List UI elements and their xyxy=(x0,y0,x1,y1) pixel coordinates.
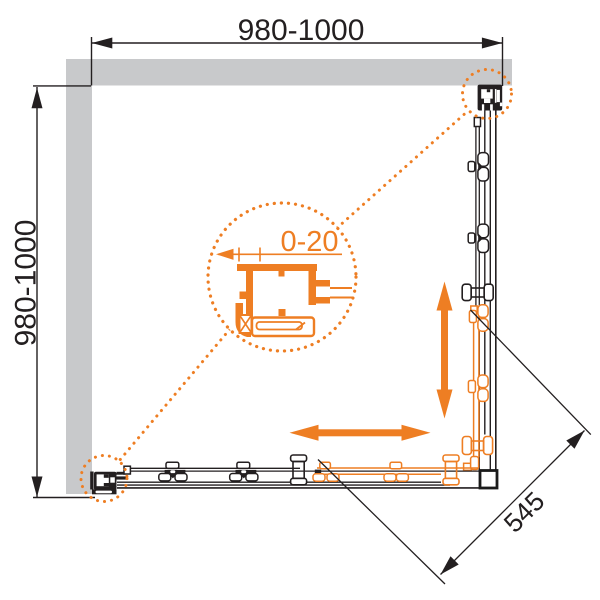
svg-text:980-1000: 980-1000 xyxy=(10,220,43,347)
svg-text:980-1000: 980-1000 xyxy=(238,14,365,47)
svg-text:0-20: 0-20 xyxy=(280,226,338,258)
